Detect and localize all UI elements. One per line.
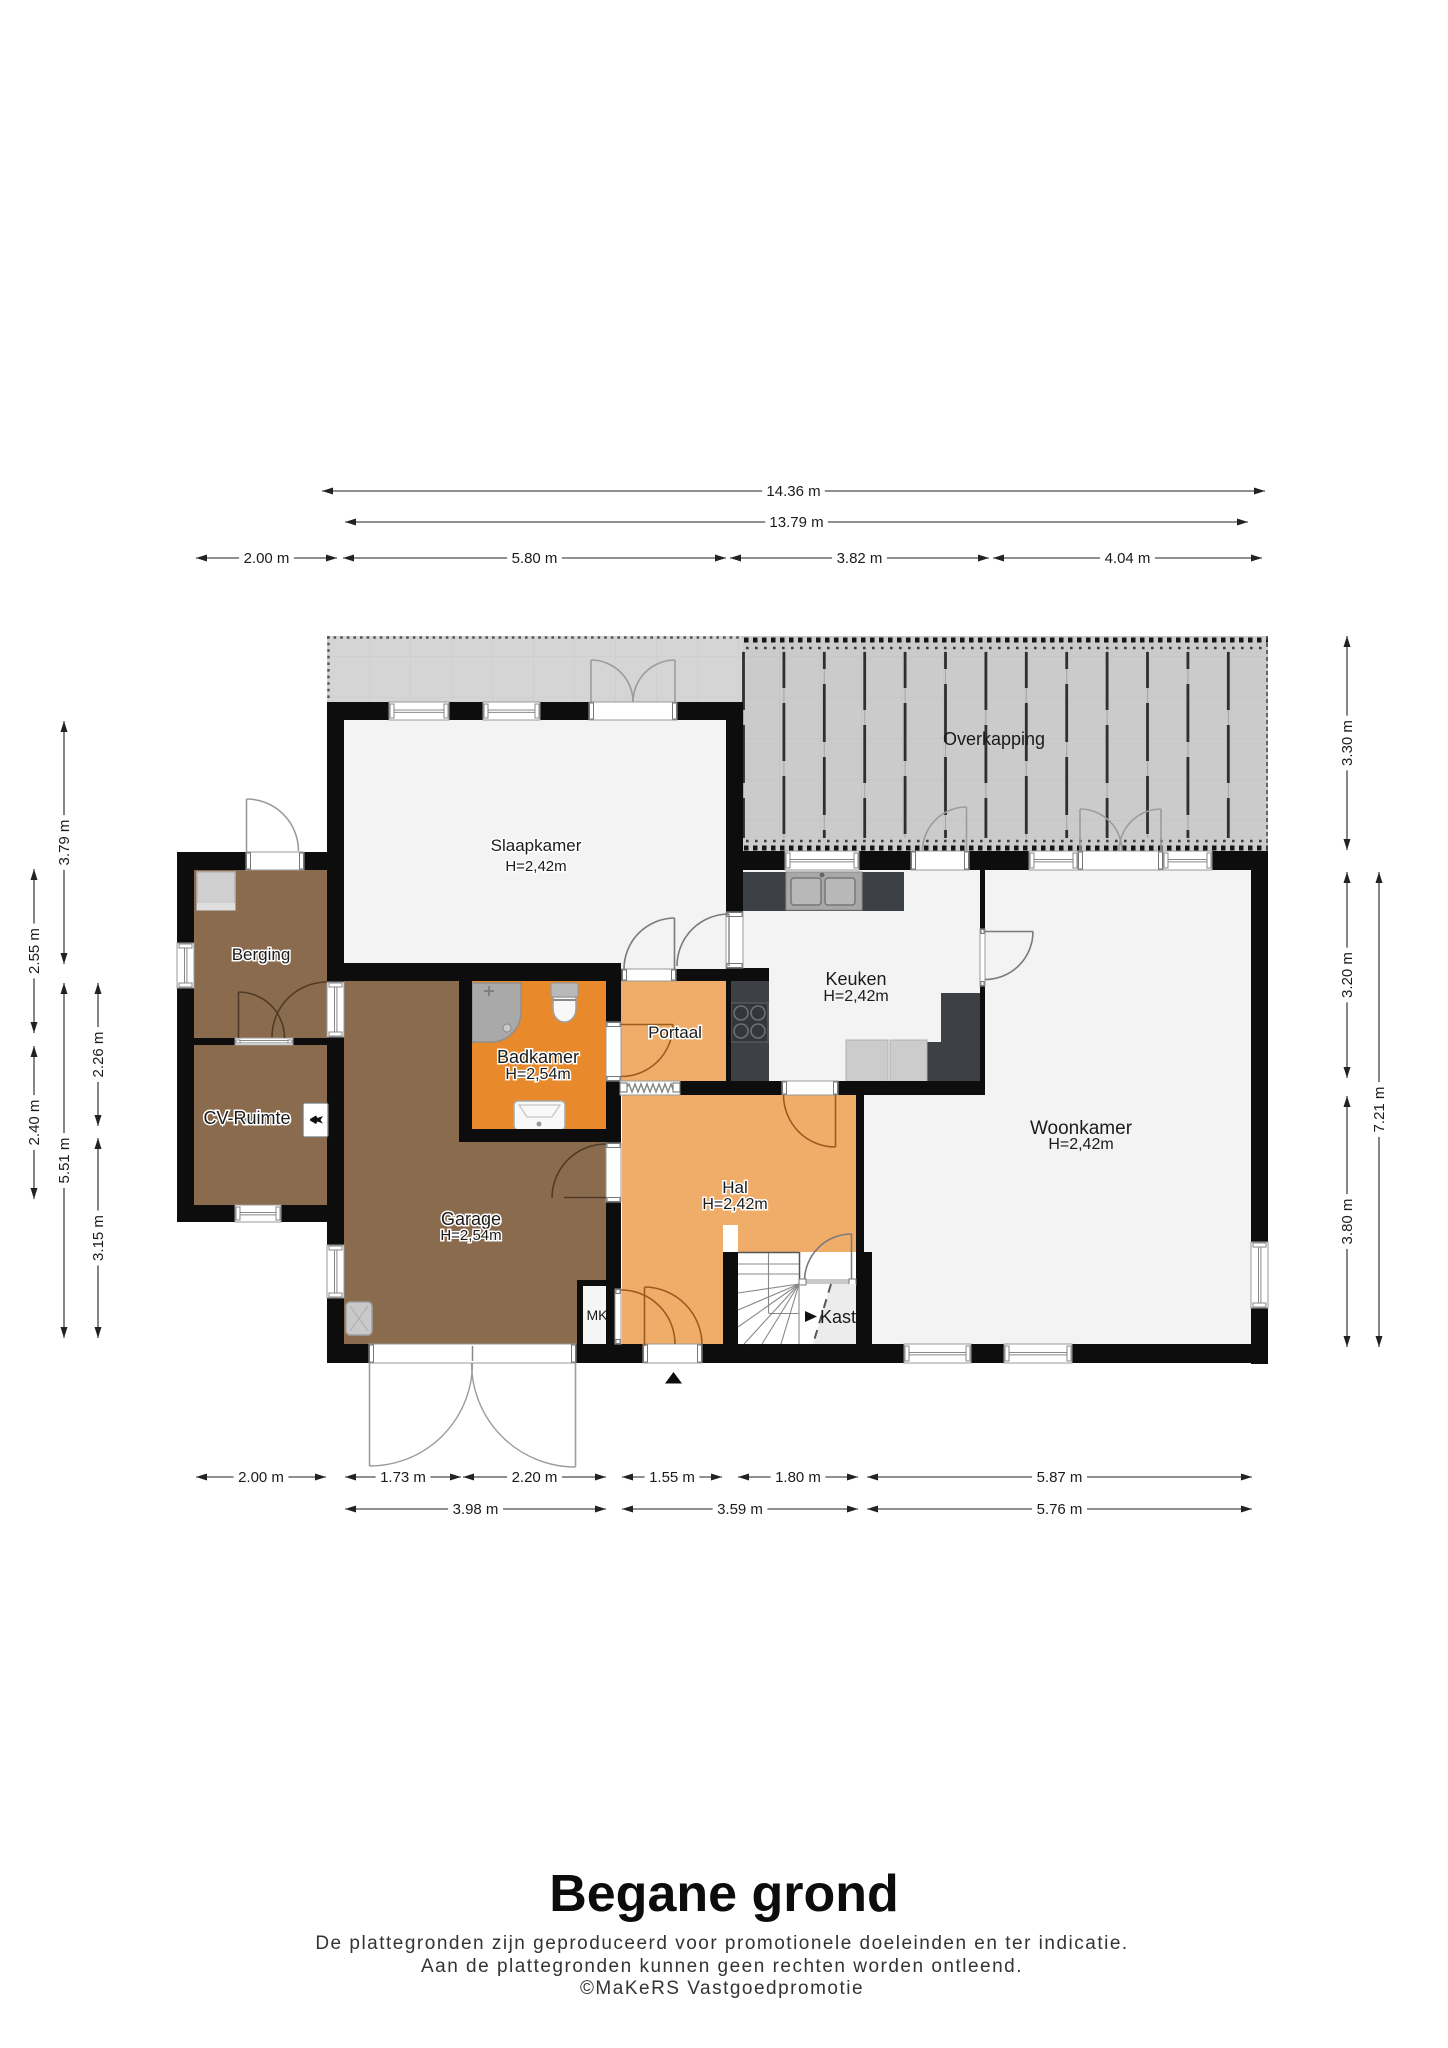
svg-text:3.20 m: 3.20 m bbox=[1339, 952, 1356, 998]
svg-text:Portaal: Portaal bbox=[648, 1023, 702, 1042]
svg-text:©MaKeRS Vastgoedpromotie: ©MaKeRS Vastgoedpromotie bbox=[580, 1978, 864, 1999]
svg-text:7.21 m: 7.21 m bbox=[1371, 1087, 1388, 1133]
svg-text:3.80 m: 3.80 m bbox=[1339, 1199, 1356, 1245]
svg-text:3.82 m: 3.82 m bbox=[837, 550, 883, 567]
svg-text:H=2,54m: H=2,54m bbox=[505, 1066, 570, 1083]
svg-text:2.00 m: 2.00 m bbox=[244, 550, 290, 567]
svg-text:Kast: Kast bbox=[820, 1307, 856, 1327]
svg-text:Slaapkamer: Slaapkamer bbox=[491, 836, 582, 855]
svg-text:5.76 m: 5.76 m bbox=[1037, 1501, 1083, 1518]
svg-text:Overkapping: Overkapping bbox=[943, 729, 1045, 749]
svg-text:H=2,54m: H=2,54m bbox=[440, 1227, 501, 1244]
svg-text:Hal: Hal bbox=[722, 1178, 748, 1197]
svg-text:Berging: Berging bbox=[232, 945, 291, 964]
svg-text:5.51 m: 5.51 m bbox=[56, 1138, 73, 1184]
svg-text:3.59 m: 3.59 m bbox=[717, 1501, 763, 1518]
svg-text:Badkamer: Badkamer bbox=[497, 1047, 579, 1067]
svg-text:3.79 m: 3.79 m bbox=[56, 820, 73, 866]
svg-text:1.73 m: 1.73 m bbox=[380, 1469, 426, 1486]
svg-text:Aan de plattegronden kunnen ge: Aan de plattegronden kunnen geen rechten… bbox=[421, 1956, 1023, 1977]
svg-text:3.30 m: 3.30 m bbox=[1339, 720, 1356, 766]
svg-text:3.98 m: 3.98 m bbox=[453, 1501, 499, 1518]
svg-text:H=2,42m: H=2,42m bbox=[505, 858, 566, 875]
svg-text:4.04 m: 4.04 m bbox=[1105, 550, 1151, 567]
svg-text:MK: MK bbox=[587, 1307, 609, 1323]
svg-text:1.55 m: 1.55 m bbox=[649, 1469, 695, 1486]
svg-text:2.26 m: 2.26 m bbox=[90, 1032, 107, 1078]
svg-text:1.80 m: 1.80 m bbox=[775, 1469, 821, 1486]
svg-text:13.79 m: 13.79 m bbox=[769, 514, 823, 531]
svg-text:Begane grond: Begane grond bbox=[549, 1865, 899, 1923]
svg-text:De plattegronden zijn geproduc: De plattegronden zijn geproduceerd voor … bbox=[315, 1933, 1128, 1954]
svg-text:3.15 m: 3.15 m bbox=[90, 1215, 107, 1261]
svg-text:5.87 m: 5.87 m bbox=[1037, 1469, 1083, 1486]
svg-text:14.36 m: 14.36 m bbox=[766, 483, 820, 500]
svg-text:Garage: Garage bbox=[441, 1209, 501, 1229]
svg-text:5.80 m: 5.80 m bbox=[512, 550, 558, 567]
svg-text:2.55 m: 2.55 m bbox=[26, 928, 43, 974]
svg-text:Keuken: Keuken bbox=[825, 969, 886, 989]
svg-text:2.00 m: 2.00 m bbox=[238, 1469, 284, 1486]
svg-text:H=2,42m: H=2,42m bbox=[823, 988, 888, 1005]
svg-text:CV-Ruimte: CV-Ruimte bbox=[203, 1108, 290, 1128]
svg-text:H=2,42m: H=2,42m bbox=[702, 1196, 767, 1213]
svg-text:2.40 m: 2.40 m bbox=[26, 1100, 43, 1146]
svg-text:2.20 m: 2.20 m bbox=[512, 1469, 558, 1486]
svg-text:H=2,42m: H=2,42m bbox=[1048, 1136, 1113, 1153]
